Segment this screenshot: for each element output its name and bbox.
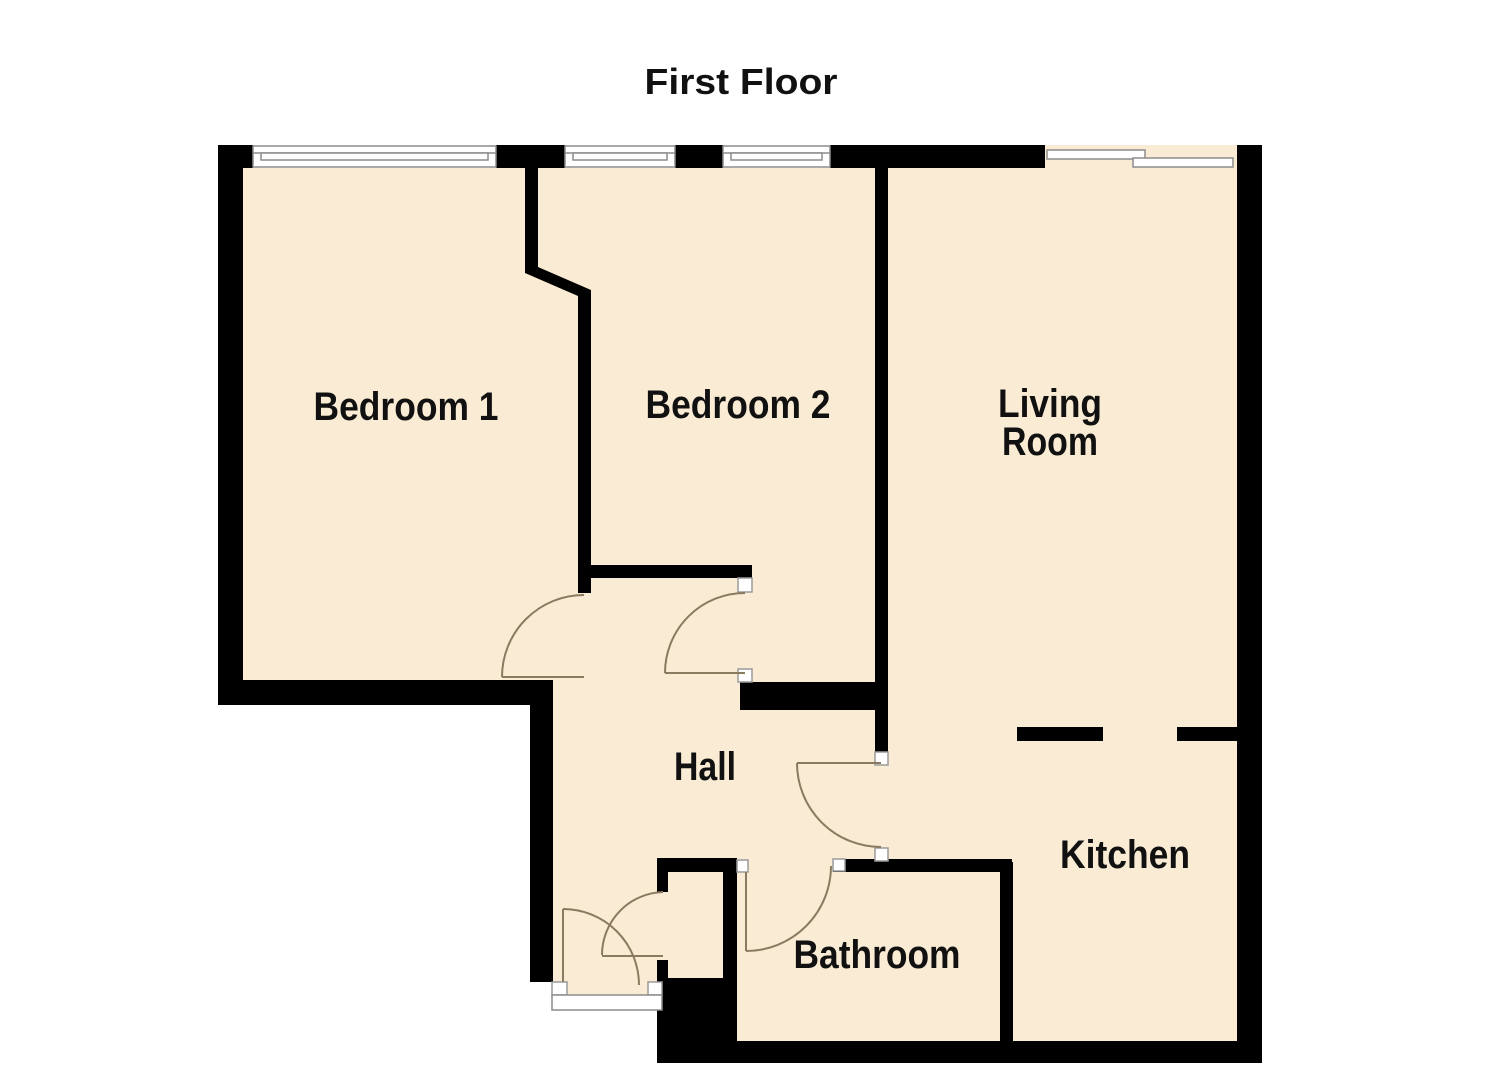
wall-bathroom-north: [833, 859, 1012, 872]
jamb-bathroom-east: [833, 859, 845, 871]
wall-right-exterior: [1237, 145, 1262, 1063]
wall-top-seg4: [830, 145, 1045, 168]
bedroom1-window-icon: [253, 146, 496, 167]
jamb-bedroom2-bottom: [738, 669, 752, 682]
wall-kitchen-partial-east: [1177, 727, 1243, 741]
floor-plan-page: First Floor: [0, 0, 1485, 1080]
page-title: First Floor: [645, 61, 838, 102]
wall-top-seg3: [675, 145, 723, 168]
wall-top-seg2: [496, 145, 565, 168]
bedroom2-window-right-icon: [723, 146, 830, 167]
wall-left-exterior: [218, 145, 243, 705]
floor-plan-svg: First Floor: [0, 0, 1485, 1080]
wall-bedroom1-bottom: [218, 680, 553, 705]
wall-bathroom-kitchen-divider: [1000, 862, 1013, 1043]
wall-closet-left-stub: [657, 858, 668, 892]
jamb-bedroom2-top: [738, 578, 752, 592]
room-label-bedroom2: Bedroom 2: [646, 383, 831, 427]
bedroom2-window-left-icon: [565, 146, 675, 167]
room-label-hall: Hall: [674, 745, 736, 789]
room-label-living-room-line2: Room: [1002, 420, 1098, 464]
jamb-bathroom-west: [737, 860, 748, 872]
jamb-entrance-left: [552, 982, 567, 995]
room-label-bathroom: Bathroom: [794, 933, 961, 977]
jamb-kitchen-bottom: [875, 848, 888, 861]
wall-hall-vestibule: [740, 682, 877, 710]
wall-hall-west: [530, 680, 553, 982]
room-label-kitchen: Kitchen: [1060, 833, 1190, 877]
room-label-bedroom1: Bedroom 1: [314, 385, 499, 429]
wall-closet-right: [723, 858, 737, 1043]
wall-entrance-corner-stub: [657, 960, 668, 1063]
wall-bedroom2-south: [578, 565, 752, 578]
entrance-threshold: [552, 995, 662, 1010]
wall-bottom-exterior: [658, 1041, 1262, 1063]
wall-livingroom-divider: [875, 168, 888, 765]
wall-kitchen-partial-west: [1017, 727, 1103, 741]
jamb-entrance-right: [648, 982, 662, 995]
